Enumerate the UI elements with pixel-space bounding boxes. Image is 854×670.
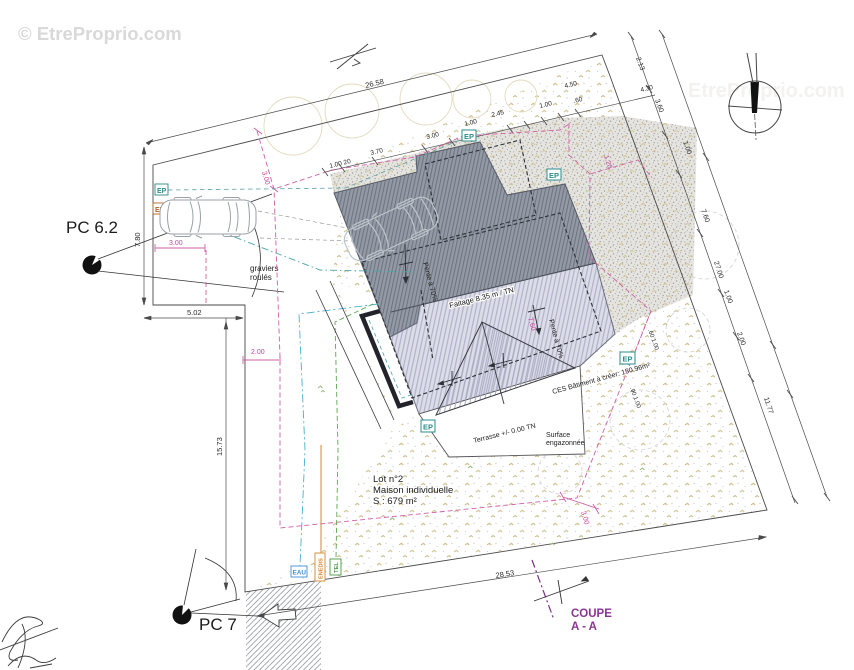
svg-text:roulés: roulés [250,273,272,282]
svg-text:15.73: 15.73 [215,437,224,456]
svg-text:2.00: 2.00 [251,349,265,356]
svg-text:5.02: 5.02 [187,308,202,317]
svg-text:ENEDIS: ENEDIS [319,558,325,579]
svg-text:EP: EP [464,132,474,141]
svg-text:EP: EP [157,188,167,195]
svg-text:2.13: 2.13 [634,56,645,71]
svg-text:A - A: A - A [571,621,597,633]
svg-text:TEL: TEL [334,562,340,573]
svg-text:7.80: 7.80 [133,232,142,247]
svg-text:S : 679 m²: S : 679 m² [373,496,417,507]
svg-text:EAU: EAU [293,570,307,577]
svg-text:COUPE: COUPE [571,608,612,620]
svg-text:7.60: 7.60 [699,208,710,223]
svg-text:11.77: 11.77 [762,396,774,414]
svg-text:engazonnée: engazonnée [546,440,585,447]
svg-text:Surface: Surface [546,432,570,439]
svg-text:Lot n°2: Lot n°2 [373,474,403,485]
svg-text:EP: EP [623,355,633,364]
svg-text:PC 7: PC 7 [199,615,237,634]
svg-text:3.00: 3.00 [169,240,183,247]
svg-text:PC 6.2: PC 6.2 [66,218,118,237]
svg-text:EP: EP [549,171,559,180]
svg-text:2.00: 2.00 [735,331,746,346]
svg-text:3.60: 3.60 [653,98,664,113]
svg-text:26.58: 26.58 [364,77,384,90]
svg-text:© EtreProprio.com: © EtreProprio.com [18,23,182,44]
svg-text:Maison individuelle: Maison individuelle [373,485,453,496]
svg-text:28.53: 28.53 [495,568,515,580]
svg-text:EP: EP [423,423,433,432]
svg-text:27.00: 27.00 [712,260,724,279]
svg-text:graviers: graviers [250,264,278,273]
